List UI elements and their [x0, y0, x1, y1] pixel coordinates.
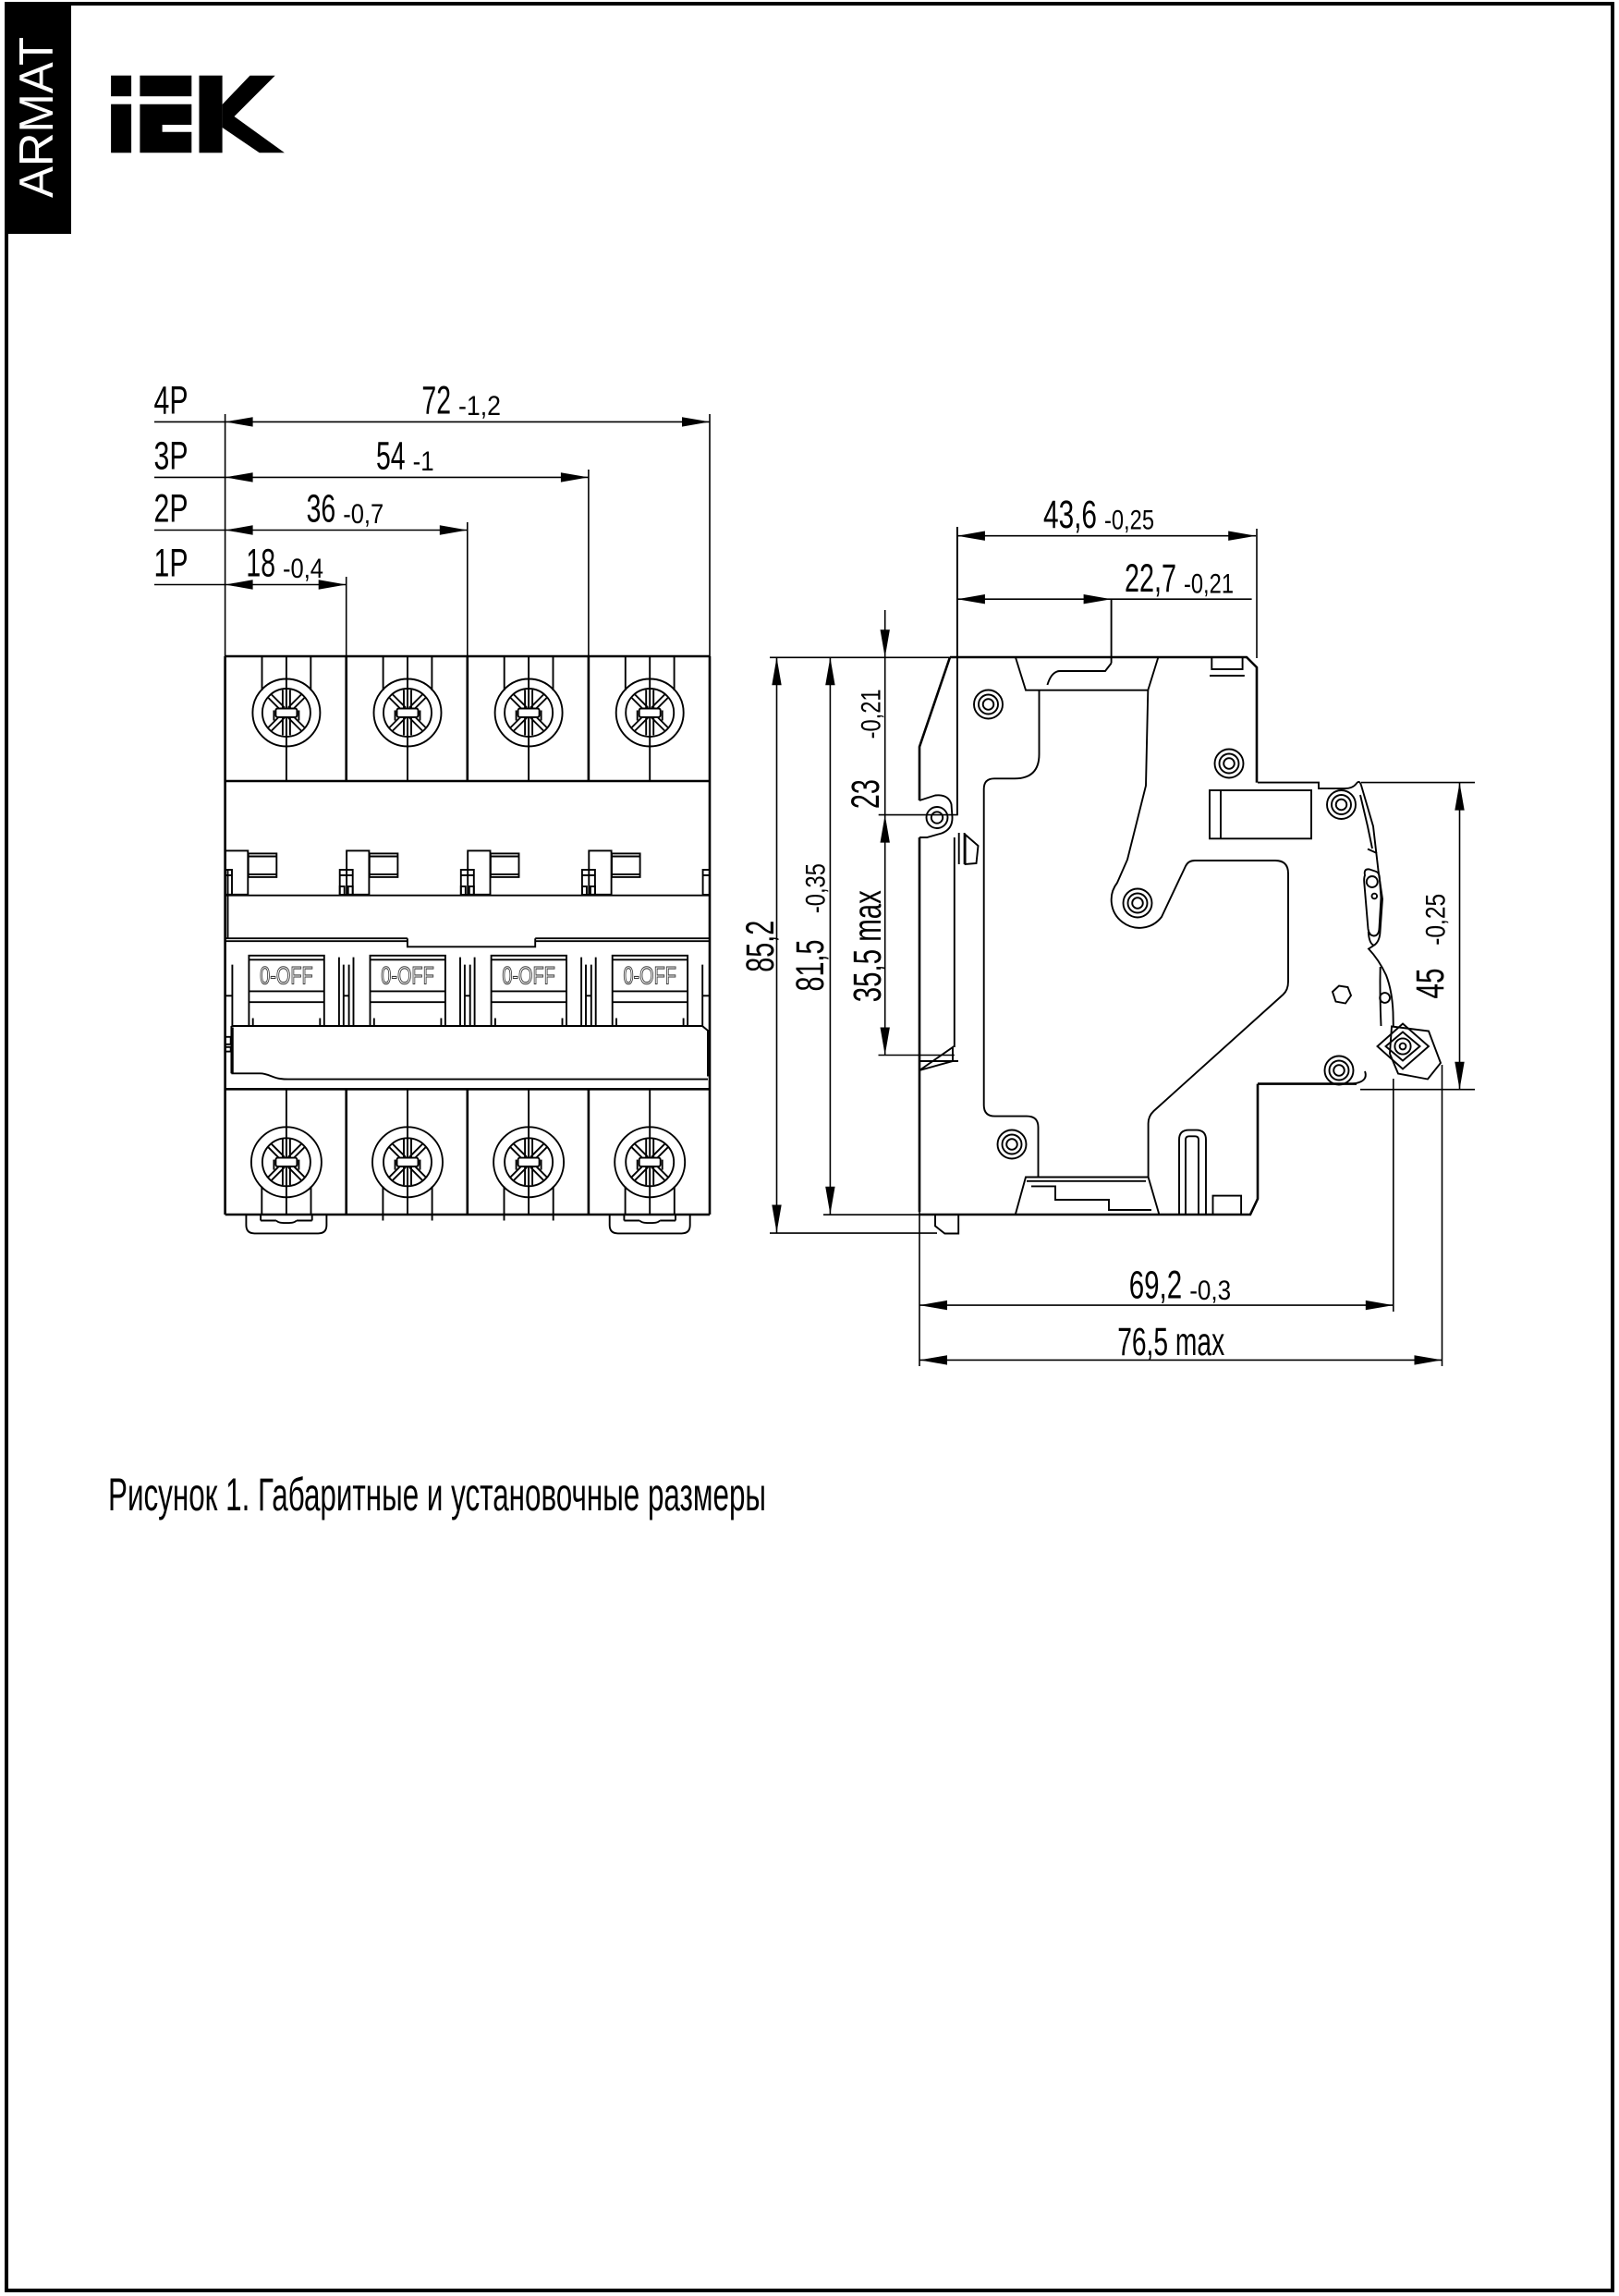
- svg-text:-0,3: -0,3: [1189, 1276, 1231, 1306]
- svg-text:-0,25: -0,25: [1421, 894, 1452, 946]
- svg-text:0-OFF: 0-OFF: [502, 962, 555, 990]
- svg-text:18: 18: [246, 542, 275, 586]
- svg-text:72: 72: [421, 379, 451, 423]
- svg-text:69,2: 69,2: [1129, 1264, 1183, 1308]
- svg-text:-1: -1: [413, 446, 434, 477]
- svg-text:43,6: 43,6: [1043, 493, 1097, 537]
- svg-text:23: 23: [844, 779, 888, 809]
- svg-text:1P: 1P: [154, 542, 189, 586]
- svg-text:81,5: 81,5: [788, 940, 833, 992]
- svg-text:-0,35: -0,35: [801, 863, 832, 913]
- svg-text:4P: 4P: [154, 379, 189, 423]
- svg-text:36: 36: [307, 487, 336, 531]
- svg-text:Рисунок 1. Габаритные и устано: Рисунок 1. Габаритные и установочные раз…: [108, 1469, 766, 1520]
- svg-text:54: 54: [376, 434, 406, 479]
- svg-text:0-OFF: 0-OFF: [381, 962, 434, 990]
- svg-text:2P: 2P: [154, 487, 189, 531]
- svg-text:-0,21: -0,21: [857, 689, 887, 739]
- svg-text:-0,7: -0,7: [343, 499, 383, 530]
- svg-text:ARMAT: ARMAT: [10, 37, 64, 198]
- svg-text:3P: 3P: [154, 434, 189, 479]
- svg-text:0-OFF: 0-OFF: [260, 962, 313, 990]
- svg-text:-0,4: -0,4: [283, 554, 323, 584]
- svg-text:-0,25: -0,25: [1104, 506, 1154, 536]
- svg-text:-1,2: -1,2: [458, 391, 501, 421]
- svg-text:-0,21: -0,21: [1184, 569, 1234, 600]
- svg-text:76,5 max: 76,5 max: [1117, 1320, 1224, 1364]
- svg-text:0-OFF: 0-OFF: [623, 962, 676, 990]
- svg-text:35,5 max: 35,5 max: [846, 890, 890, 1002]
- svg-text:22,7: 22,7: [1125, 556, 1176, 601]
- svg-text:45: 45: [1408, 969, 1453, 999]
- svg-text:85,2: 85,2: [738, 921, 783, 972]
